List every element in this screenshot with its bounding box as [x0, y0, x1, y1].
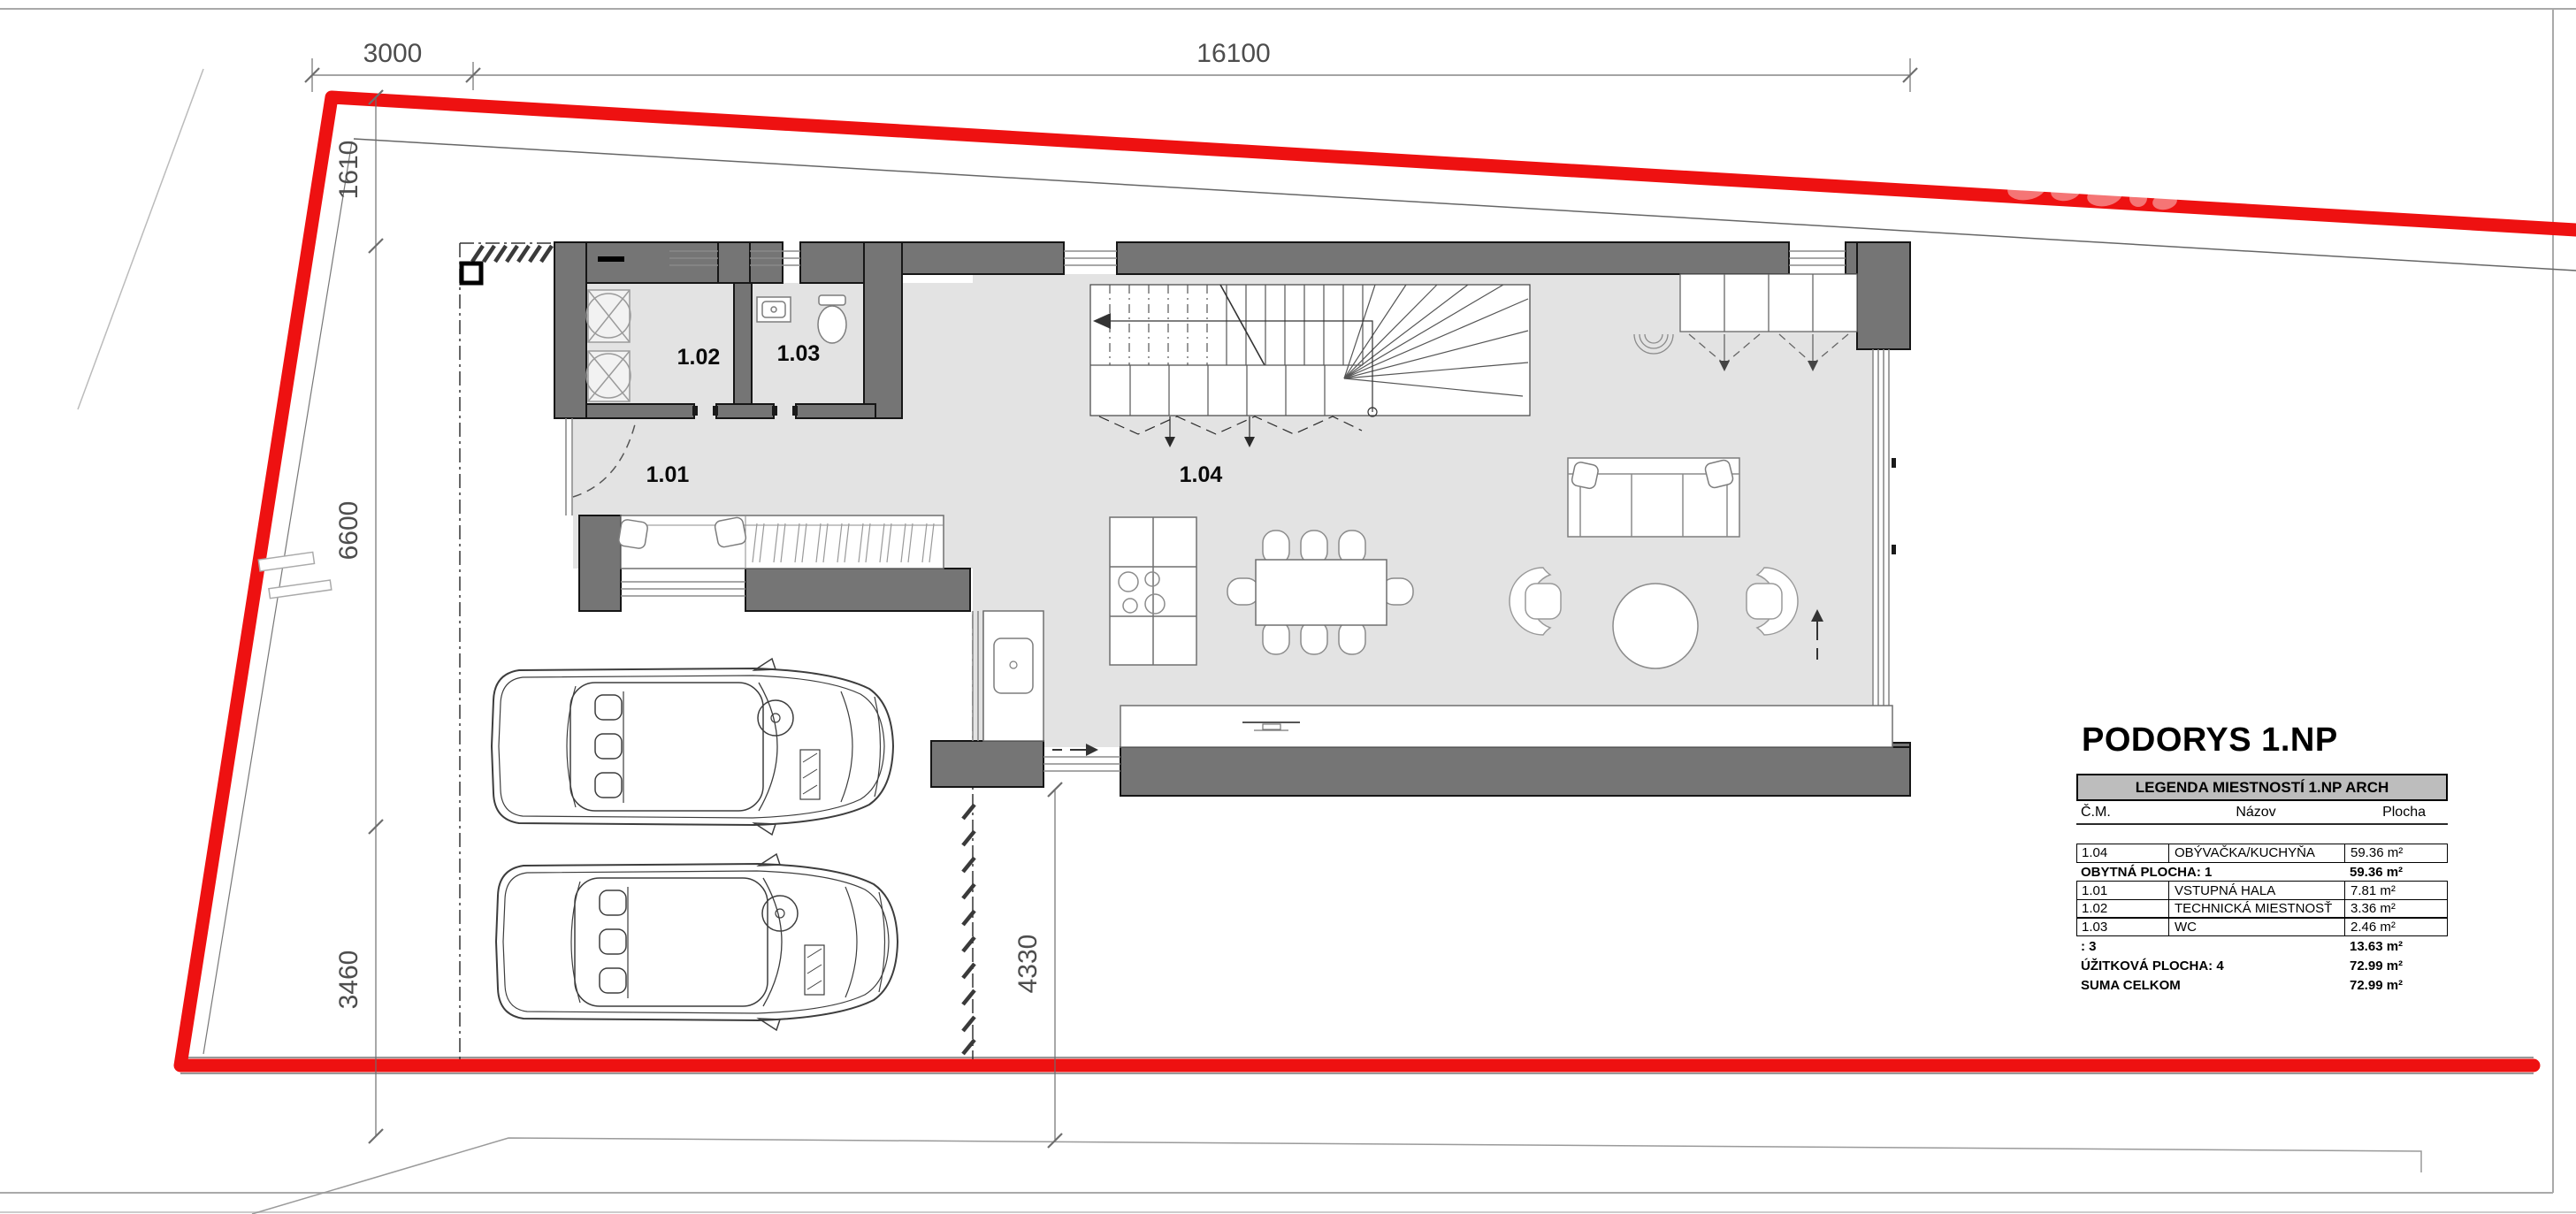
cell-plocha: 13.63 m²: [2344, 939, 2443, 954]
lower-parcel-boundary: [252, 1138, 2421, 1214]
dim-1610: 1610: [334, 141, 363, 200]
car-1: [492, 659, 893, 835]
room-label-101: 1.01: [646, 462, 690, 487]
floorplan-sheet: { "title": "PODORYS 1.NP", "dimensions":…: [0, 0, 2576, 1214]
col-cm: Č.M.: [2076, 805, 2167, 821]
cell-nazov: TECHNICKÁ MIESTNOSŤ: [2168, 900, 2345, 918]
legend-row-summary: ÚŽITKOVÁ PLOCHA: 4 72.99 m²: [2076, 956, 2448, 975]
hall-bench-wardrobe: [618, 515, 944, 569]
legend-header: LEGENDA MIESTNOSTÍ 1.NP ARCH: [2076, 774, 2448, 801]
dim-6600: 6600: [334, 501, 363, 561]
cell-cm: 1.02: [2077, 901, 2168, 916]
floorplan-drawing: 3000 16100 1610 6600 3460 4330: [0, 0, 2576, 1214]
cell-plocha: 59.36 m²: [2345, 845, 2444, 860]
cell-cm: 1.01: [2077, 883, 2168, 898]
room-label-103: 1.03: [777, 341, 821, 366]
site-marker-square: [462, 263, 481, 283]
cell-plocha: 3.36 m²: [2345, 901, 2444, 916]
col-nazov: Názov: [2167, 805, 2344, 821]
legend-row: 1.02 TECHNICKÁ MIESTNOSŤ 3.36 m²: [2076, 899, 2448, 919]
col-plocha: Plocha: [2344, 805, 2443, 821]
dim-4330: 4330: [1013, 935, 1043, 994]
page-title: PODORYS 1.NP: [2082, 722, 2457, 760]
tv-sideboard: [1120, 706, 1892, 747]
cell-cm: : 3: [2076, 939, 2344, 954]
cell-cm: OBYTNÁ PLOCHA: 1: [2076, 865, 2344, 880]
legend-row-summary: SUMA CELKOM 72.99 m²: [2076, 975, 2448, 995]
cell-plocha: 72.99 m²: [2344, 978, 2443, 993]
cell-plocha: 72.99 m²: [2344, 958, 2443, 973]
cell-cm: 1.03: [2077, 920, 2168, 935]
cell-plocha: 7.81 m²: [2345, 883, 2444, 898]
legend-row-summary: OBYTNÁ PLOCHA: 1 59.36 m²: [2076, 863, 2448, 882]
legend-row: 1.01 VSTUPNÁ HALA 7.81 m²: [2076, 881, 2448, 900]
legend-table: LEGENDA MIESTNOSTÍ 1.NP ARCH Č.M. Názov …: [2076, 774, 2448, 995]
cell-cm: 1.04: [2077, 845, 2168, 860]
cell-cm: ÚŽITKOVÁ PLOCHA: 4: [2076, 958, 2344, 973]
legend-column-headers: Č.M. Názov Plocha: [2076, 801, 2448, 825]
kitchen-island: [1110, 517, 1196, 665]
coffee-table: [1613, 584, 1698, 668]
cell-plocha: 59.36 m²: [2344, 865, 2443, 880]
dim-3000: 3000: [363, 39, 423, 68]
room-label-104: 1.04: [1180, 462, 1223, 487]
legend-row: 1.03 WC 2.46 m²: [2076, 917, 2448, 936]
legend-row-summary: : 3 13.63 m²: [2076, 936, 2448, 956]
dim-16100: 16100: [1196, 39, 1270, 68]
cell-plocha: 2.46 m²: [2345, 920, 2444, 935]
sofa: [1568, 458, 1739, 537]
wall-chimney-mark: [598, 256, 624, 262]
legend-panel: PODORYS 1.NP LEGENDA MIESTNOSTÍ 1.NP ARC…: [2076, 722, 2457, 995]
legend-row: 1.04 OBÝVAČKA/KUCHYŇA 59.36 m²: [2076, 844, 2448, 863]
adjacent-parcel-line: [78, 69, 203, 409]
cell-nazov: OBÝVAČKA/KUCHYŇA: [2168, 844, 2345, 862]
car-2: [496, 854, 898, 1030]
cell-nazov: VSTUPNÁ HALA: [2168, 882, 2345, 899]
cell-nazov: WC: [2168, 918, 2345, 935]
kitchen-counter: [983, 611, 1043, 741]
dim-3460: 3460: [334, 951, 363, 1010]
room-label-102: 1.02: [677, 345, 721, 370]
cell-cm: SUMA CELKOM: [2076, 978, 2344, 993]
